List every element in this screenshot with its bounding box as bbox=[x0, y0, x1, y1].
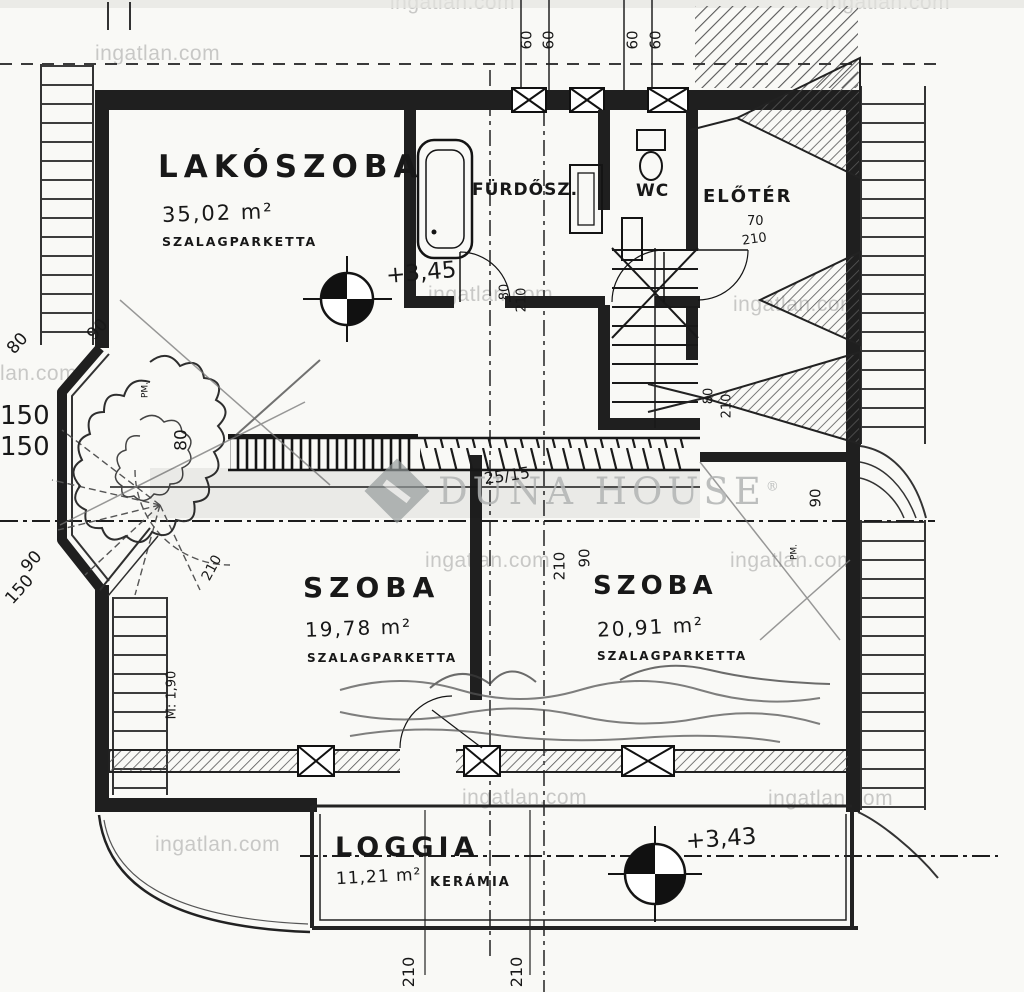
dim-right-90: 90 bbox=[809, 488, 824, 507]
dim-eloter-door-80: 80 bbox=[703, 388, 716, 405]
room-area-lakoszoba: 35,02 m² bbox=[162, 201, 274, 226]
dim-height-note: M: 1,90 bbox=[166, 671, 179, 720]
level-mark-loggia: +3,43 bbox=[685, 826, 757, 854]
dim-pm-right: PM. bbox=[791, 544, 800, 560]
room-area-loggia: 11,21 m² bbox=[336, 867, 422, 888]
brand-diamond-logo-icon bbox=[364, 458, 429, 523]
scan-noise bbox=[0, 0, 1024, 8]
dim-top-60-3: 60 bbox=[626, 30, 641, 49]
bottom-wall-and-windows bbox=[109, 746, 849, 776]
room-floor-lakoszoba: SZALAGPARKETTA bbox=[162, 236, 317, 249]
dim-top-60-2: 60 bbox=[542, 30, 557, 49]
dim-mid-210: 210 bbox=[553, 552, 568, 581]
registered-mark: ® bbox=[766, 479, 784, 494]
dim-bath-door-80: 80 bbox=[499, 284, 512, 301]
room-floor-szoba1: SZALAGPARKETTA bbox=[307, 652, 457, 664]
dim-rail-80: 80 bbox=[174, 429, 191, 451]
room-label-eloter: ELŐTÉR bbox=[703, 188, 793, 206]
dim-mid-90: 90 bbox=[578, 548, 593, 567]
room-label-loggia: LOGGIA bbox=[335, 834, 479, 861]
room-area-szoba1: 19,78 m² bbox=[305, 616, 413, 640]
dim-eloter-210: 210 bbox=[741, 231, 767, 247]
room-floor-loggia: KERÁMIA bbox=[430, 876, 511, 889]
brand-watermark: DUNA HOUSE® bbox=[368, 462, 784, 520]
dim-bath-door-210: 210 bbox=[516, 288, 529, 313]
room-area-szoba2: 20,91 m² bbox=[597, 614, 705, 640]
floorplan-page: ingatlan.com ingatlan.com ingatlan.com i… bbox=[0, 0, 1024, 992]
dim-top-60-4: 60 bbox=[649, 30, 664, 49]
dim-top-60-1: 60 bbox=[520, 30, 535, 49]
room-label-szoba2: SZOBA bbox=[593, 573, 718, 599]
dim-left-150-1: 150 bbox=[0, 403, 50, 429]
dim-bottom-210-2: 210 bbox=[509, 957, 525, 988]
dim-pm-left: PM. bbox=[142, 382, 151, 398]
dim-eloter-door-210: 210 bbox=[721, 394, 734, 419]
room-label-lakoszoba: LAKÓSZOBA bbox=[158, 152, 424, 183]
dim-bottom-210-1: 210 bbox=[401, 957, 417, 988]
room-label-furdoszoba: FÜRDŐSZ. bbox=[472, 182, 578, 199]
room-floor-szoba2: SZALAGPARKETTA bbox=[597, 650, 747, 662]
room-label-szoba1: SZOBA bbox=[303, 574, 440, 602]
room-label-wc: WC bbox=[636, 183, 669, 200]
dim-eloter-70: 70 bbox=[747, 215, 764, 228]
level-mark-upper: +3,45 bbox=[385, 259, 457, 288]
dim-left-150-2: 150 bbox=[0, 434, 50, 460]
